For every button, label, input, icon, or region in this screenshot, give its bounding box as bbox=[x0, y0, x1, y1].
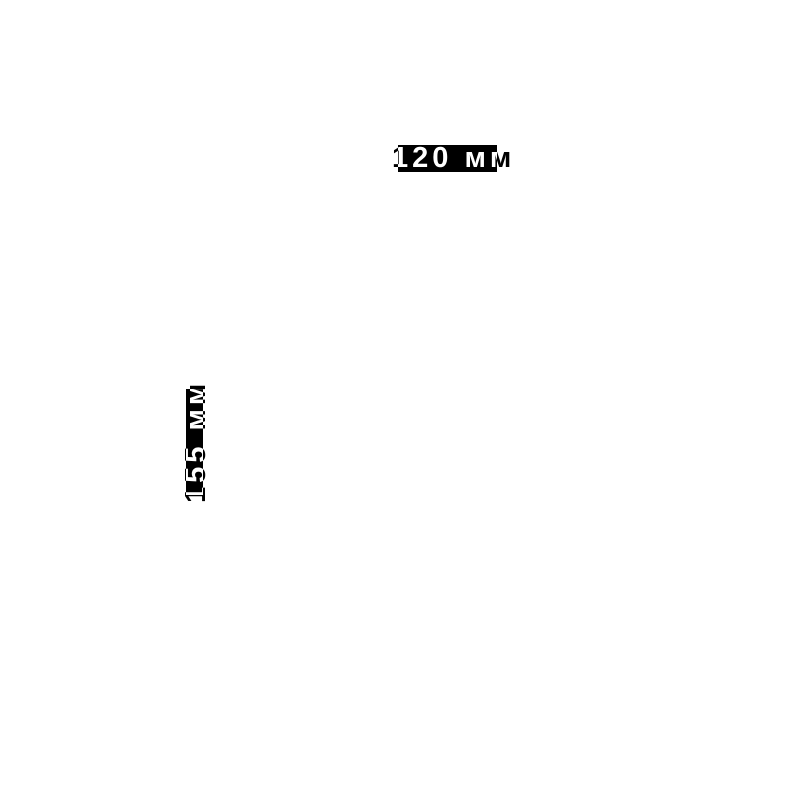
height-dimension-label: 155 мм bbox=[186, 389, 203, 495]
drawing-canvas: 120 мм 120 мм 155 мм 155 мм bbox=[0, 0, 800, 800]
height-dimension-badge: 155 мм bbox=[186, 389, 203, 495]
width-dimension-label: 120 мм bbox=[398, 145, 497, 171]
width-dimension-badge: 120 мм bbox=[398, 145, 497, 172]
